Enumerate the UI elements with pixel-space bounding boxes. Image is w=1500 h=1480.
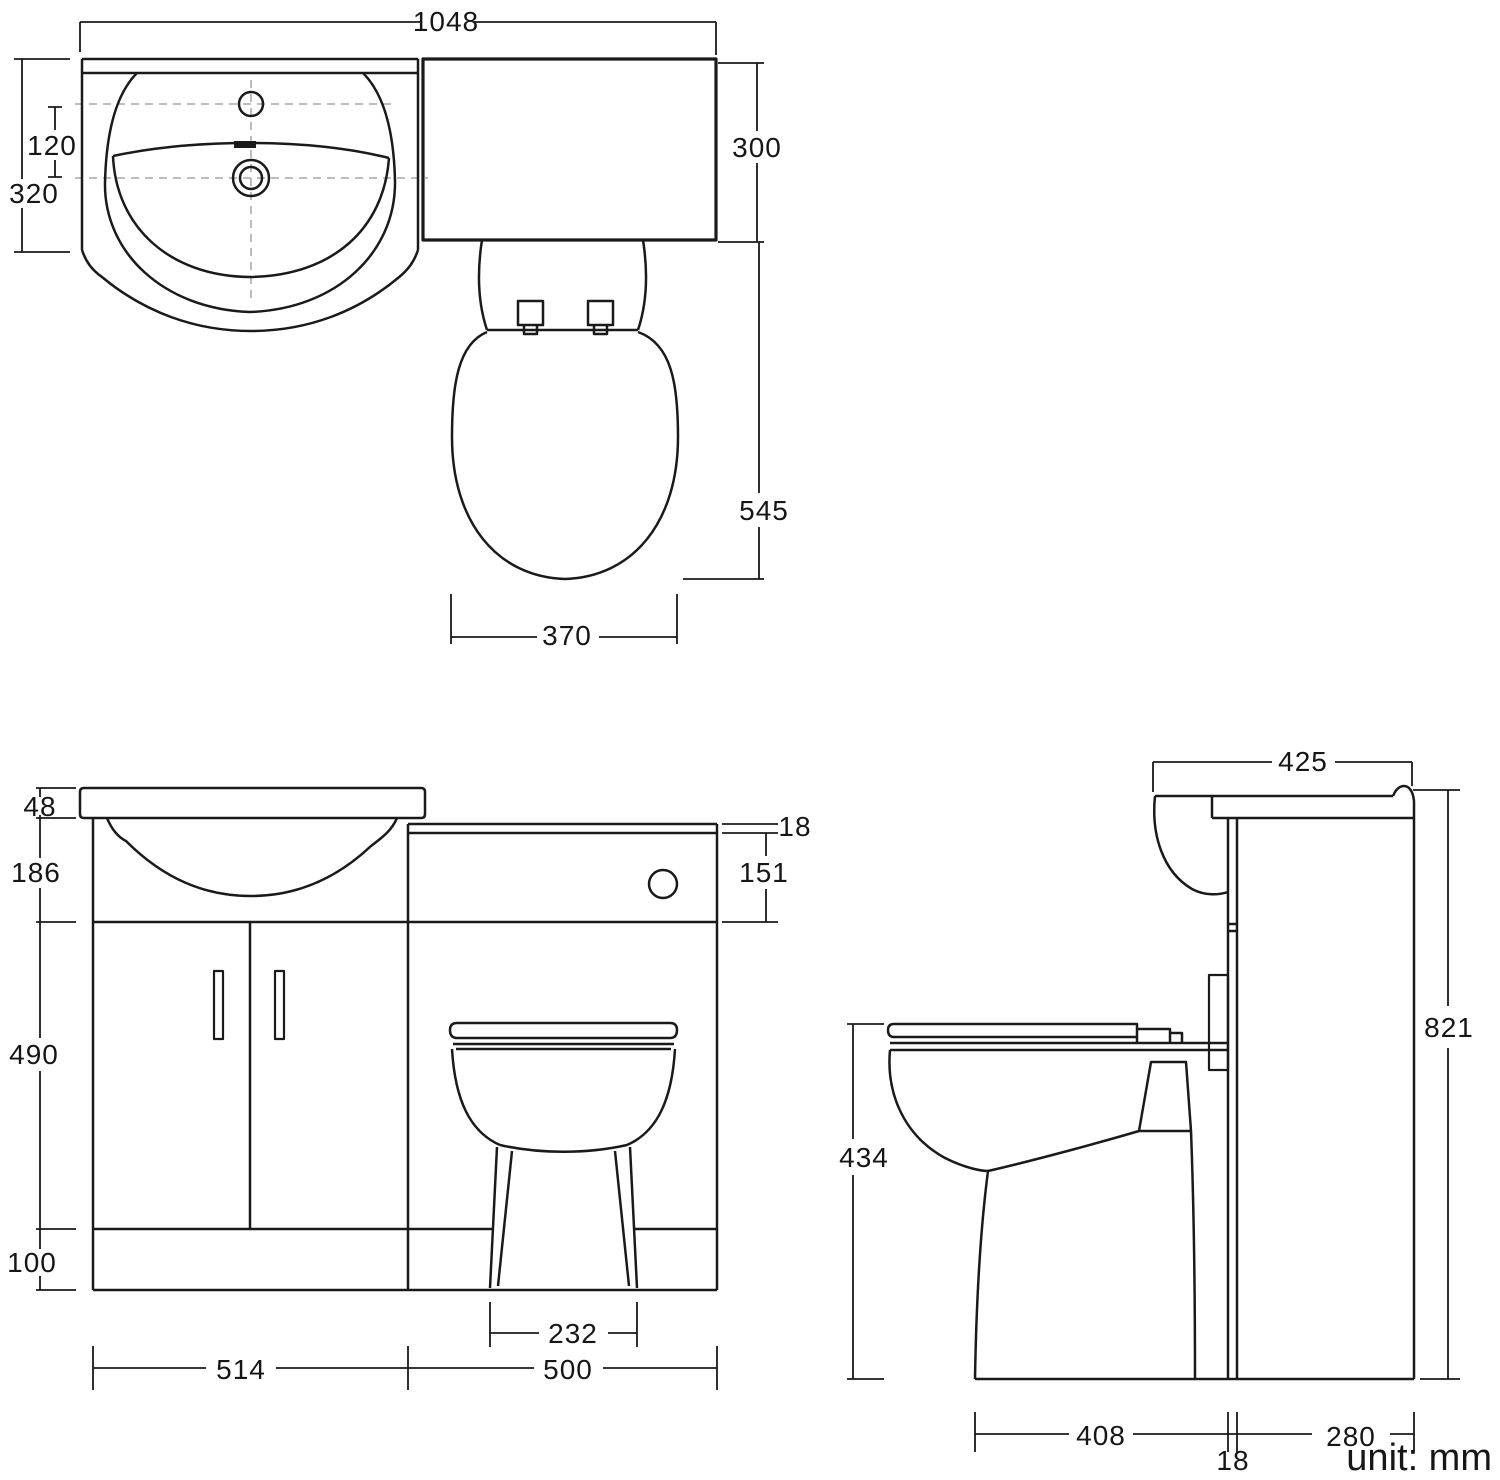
dim-plan-wc-projection: 545	[739, 495, 789, 526]
dim-plan-width: 1048	[413, 6, 479, 37]
dim-front-wc-panel: 151	[739, 857, 789, 888]
plan-toilet-pan	[452, 240, 678, 579]
dim-front-wc-top: 18	[778, 811, 811, 842]
dim-side-depth: 425	[1278, 746, 1328, 777]
side-flush-access-panel	[1209, 975, 1228, 1070]
front-toilet	[450, 1023, 677, 1288]
dim-plan-wc-depth: 300	[732, 132, 782, 163]
dim-front-worktop: 48	[23, 791, 56, 822]
front-view: 48 186 490 100 18 151 232 514 500	[7, 788, 811, 1390]
dim-plan-pan-width: 370	[542, 620, 592, 651]
plan-wc-unit-box	[423, 59, 716, 240]
vanity-unit-dimension-drawing: 1048 120 320 300 545 370 48 186 490 100 …	[0, 0, 1500, 1480]
dim-plan-tap-offset: 120	[27, 130, 77, 161]
units-note: unit: mm	[1346, 1437, 1492, 1479]
plan-dimension-lines	[14, 22, 764, 644]
dim-side-pan-height: 434	[839, 1142, 889, 1173]
side-view: 425 821 434 408 18 280	[839, 746, 1474, 1476]
front-worktop	[80, 788, 425, 818]
dim-side-pan-depth: 408	[1076, 1420, 1126, 1451]
plan-overflow-slot	[234, 141, 256, 148]
front-flush-button	[649, 870, 677, 898]
technical-drawing-page: 1048 120 320 300 545 370 48 186 490 100 …	[0, 0, 1500, 1480]
dim-front-plinth: 100	[7, 1247, 57, 1278]
dim-front-door-height: 490	[9, 1039, 59, 1070]
side-dimension-lines	[847, 762, 1460, 1452]
dim-side-height: 821	[1424, 1012, 1474, 1043]
dim-front-vanity-width: 514	[216, 1354, 266, 1385]
dim-front-pan-base: 232	[548, 1318, 598, 1349]
plan-view: 1048 120 320 300 545 370	[9, 6, 789, 651]
dim-side-panel: 18	[1216, 1445, 1249, 1476]
side-toilet	[888, 1024, 1228, 1379]
dim-front-basin-height: 186	[11, 857, 61, 888]
dim-plan-basin-depth: 320	[9, 178, 59, 209]
front-cabinet	[93, 818, 717, 1290]
dim-front-wc-width: 500	[543, 1354, 593, 1385]
